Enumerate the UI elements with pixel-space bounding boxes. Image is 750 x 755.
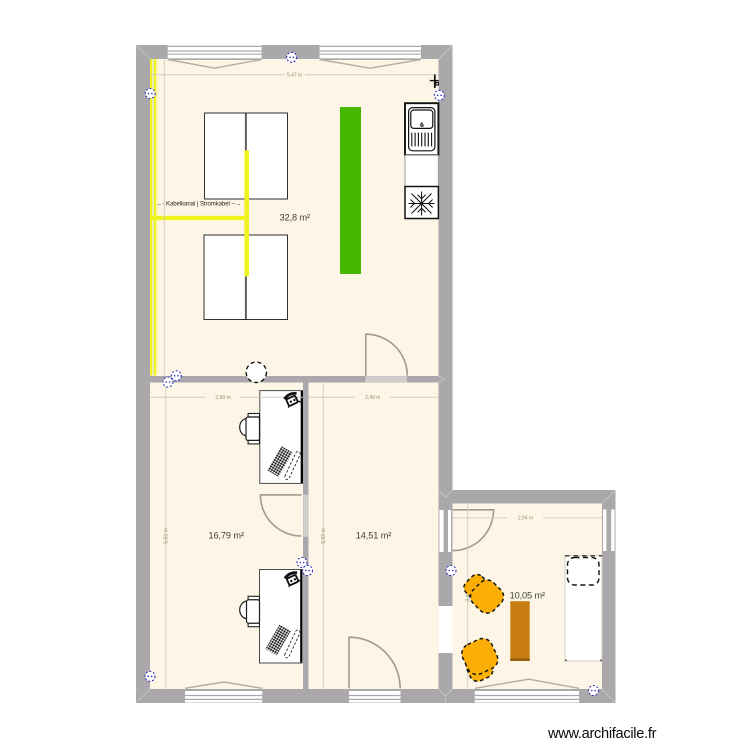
- svg-text:←- Kabelkanal | Stromkabel --→: ←- Kabelkanal | Stromkabel --→: [157, 202, 242, 208]
- svg-text:www.archifacile.fr: www.archifacile.fr: [547, 726, 657, 742]
- svg-text:2,49 m: 2,49 m: [365, 395, 380, 401]
- svg-text:10,05 m²: 10,05 m²: [510, 590, 545, 600]
- svg-text:5,47 m: 5,47 m: [287, 73, 302, 79]
- svg-text:5,83 m: 5,83 m: [321, 528, 327, 543]
- svg-text:2,94 m: 2,94 m: [518, 516, 533, 522]
- svg-text:5,83 m: 5,83 m: [164, 528, 170, 543]
- svg-text:16,79 m²: 16,79 m²: [208, 530, 243, 540]
- svg-text:14,51 m²: 14,51 m²: [356, 530, 391, 540]
- svg-text:2,88 m: 2,88 m: [215, 395, 230, 401]
- svg-text:32,8 m²: 32,8 m²: [280, 212, 310, 222]
